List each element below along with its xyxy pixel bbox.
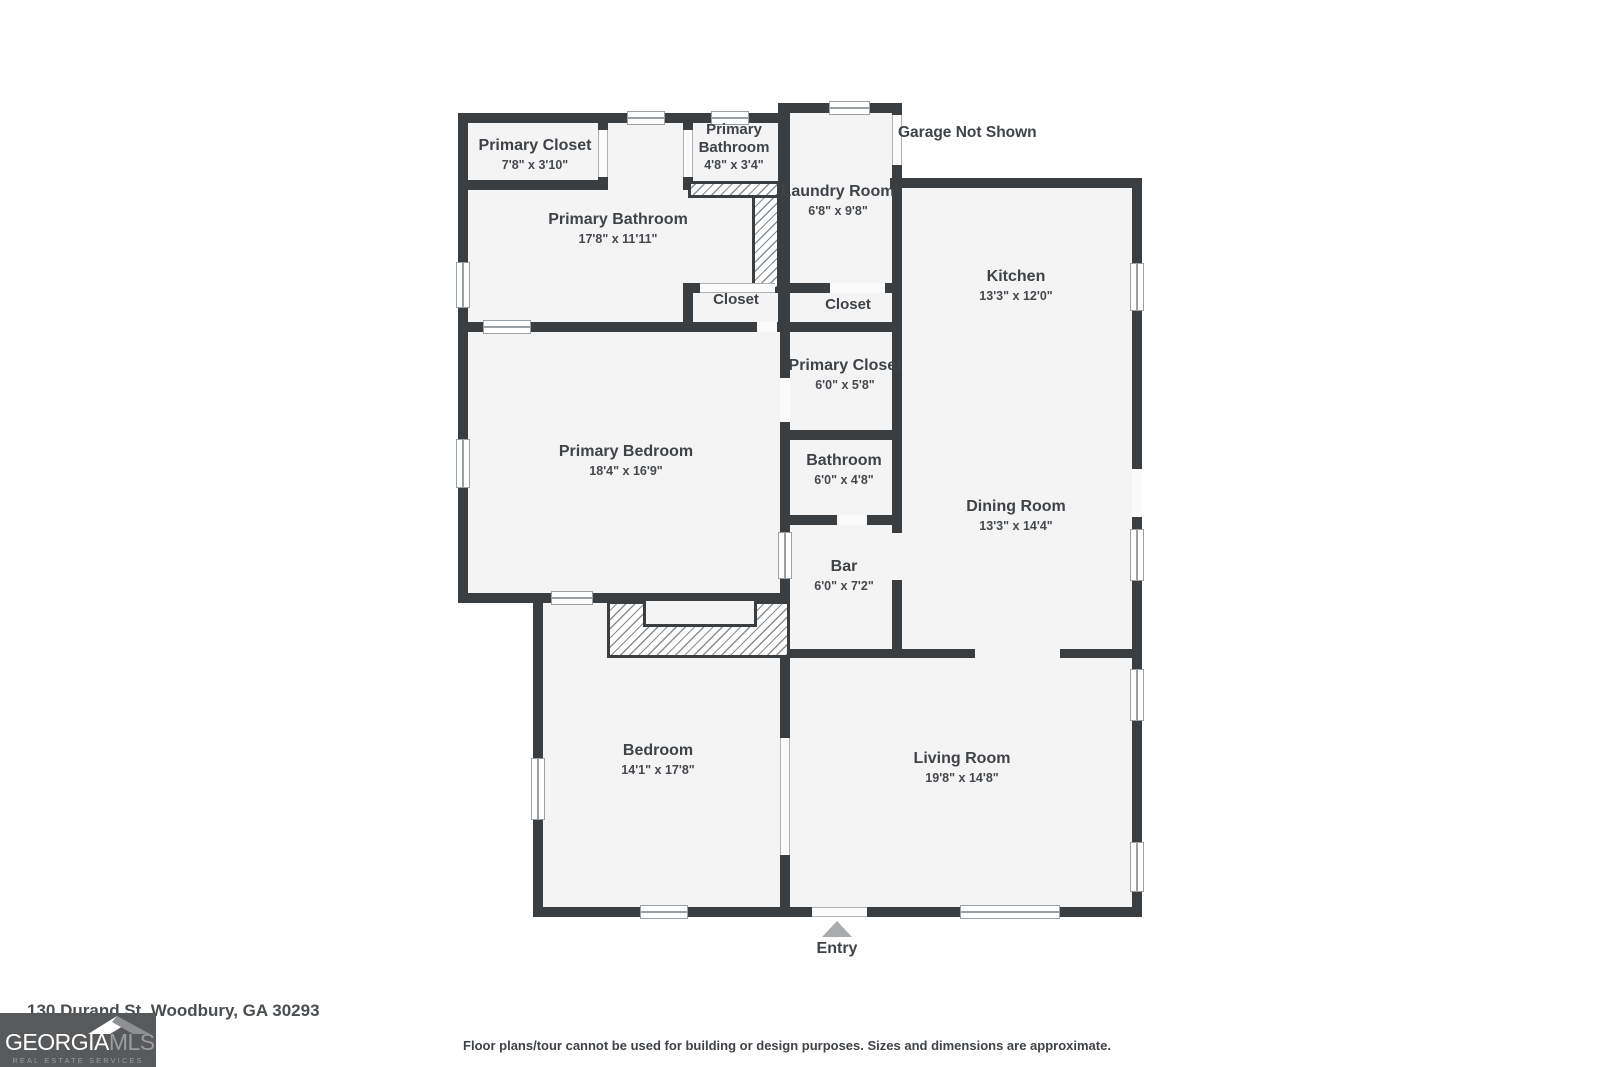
window-symbol <box>483 320 531 334</box>
fireplace-notch <box>643 601 757 627</box>
logo-tagline: REAL ESTATE SERVICES <box>0 1056 156 1065</box>
floor-area <box>900 186 1134 658</box>
room-name: Dining Room <box>966 498 1066 517</box>
room-label-closet-left: Closet <box>713 291 759 309</box>
disclaimer-text: Floor plans/tour cannot be used for buil… <box>463 1038 1111 1053</box>
room-dims: 7'8" x 3'10" <box>479 158 592 172</box>
room-label-primary-bedroom: Primary Bedroom 18'4" x 16'9" <box>559 443 693 478</box>
room-dims: 17'8" x 11'11" <box>548 232 688 246</box>
logo-brand-primary: GEORGIA <box>5 1029 109 1055</box>
room-label-primary-bathroom-small: Primary Bathroom 4'8" x 3'4" <box>674 121 794 172</box>
wall-segment <box>892 580 902 658</box>
room-dims: 18'4" x 16'9" <box>559 464 693 478</box>
room-label-laundry-room: Laundry Room 6'8" x 9'8" <box>782 183 895 218</box>
door-opening <box>757 322 777 332</box>
window-symbol <box>640 905 688 919</box>
room-dims: 6'0" x 7'2" <box>814 579 874 593</box>
door-opening <box>837 515 867 525</box>
window-symbol <box>960 905 1060 919</box>
wall-segment <box>892 103 902 533</box>
floorplan-page: Primary Closet 7'8" x 3'10" Primary Bath… <box>0 0 1600 1067</box>
logo-brand-secondary: MLS <box>109 1029 155 1055</box>
door-opening <box>830 283 885 293</box>
room-name: Primary Bedroom <box>559 443 693 462</box>
georgia-mls-logo: GEORGIAMLS REAL ESTATE SERVICES <box>0 1013 156 1067</box>
window-symbol <box>627 111 665 125</box>
room-name: Primary Bathroom <box>548 211 688 230</box>
window-symbol <box>551 591 593 605</box>
room-name: Laundry Room <box>782 183 895 202</box>
garage-note: Garage Not Shown <box>898 124 1037 142</box>
room-label-closet-right: Closet <box>825 296 871 314</box>
room-dims: 4'8" x 3'4" <box>674 158 794 172</box>
wall-segment <box>1060 649 1142 658</box>
room-dims: 13'3" x 12'0" <box>979 289 1052 303</box>
door-opening <box>780 738 790 855</box>
room-dims: 6'8" x 9'8" <box>782 204 895 218</box>
wall-segment <box>780 649 975 658</box>
room-name: Primary Closet <box>479 137 592 156</box>
room-label-living-room: Living Room 19'8" x 14'8" <box>914 750 1011 785</box>
room-label-primary-bathroom: Primary Bathroom 17'8" x 11'11" <box>548 211 688 246</box>
room-name: Living Room <box>914 750 1011 769</box>
window-symbol <box>778 532 792 579</box>
window-symbol <box>1130 263 1144 311</box>
room-name: Bedroom <box>621 742 694 761</box>
door-opening <box>598 130 608 177</box>
room-name: Primary Closet <box>789 357 902 376</box>
entry-label: Entry <box>817 940 858 958</box>
room-label-primary-closet-1: Primary Closet 7'8" x 3'10" <box>479 137 592 172</box>
window-symbol <box>1130 842 1144 892</box>
room-dims: 6'0" x 5'8" <box>789 378 902 392</box>
wall-segment <box>780 430 902 440</box>
room-label-bathroom: Bathroom 6'0" x 4'8" <box>806 452 882 487</box>
wall-segment <box>458 180 608 190</box>
room-name: Bathroom <box>806 452 882 471</box>
room-name: Closet <box>825 296 871 314</box>
room-name: Bar <box>814 558 874 577</box>
room-name: Closet <box>713 291 759 309</box>
window-symbol <box>1130 669 1144 721</box>
wall-opening <box>1132 469 1142 517</box>
room-dims: 14'1" x 17'8" <box>621 763 694 777</box>
room-label-bedroom: Bedroom 14'1" x 17'8" <box>621 742 694 777</box>
wall-segment <box>533 593 543 917</box>
room-label-primary-closet-2: Primary Closet 6'0" x 5'8" <box>789 357 902 392</box>
hatch-chimney <box>752 195 780 290</box>
window-symbol <box>456 439 470 488</box>
entry-door-opening <box>812 907 867 917</box>
window-symbol <box>829 101 870 115</box>
room-dims: 6'0" x 4'8" <box>806 473 882 487</box>
room-label-kitchen: Kitchen 13'3" x 12'0" <box>979 268 1052 303</box>
room-label-dining-room: Dining Room 13'3" x 14'4" <box>966 498 1066 533</box>
room-label-bar: Bar 6'0" x 7'2" <box>814 558 874 593</box>
window-symbol <box>531 758 545 820</box>
window-symbol <box>1130 529 1144 581</box>
room-dims: 19'8" x 14'8" <box>914 771 1011 785</box>
window-symbol <box>456 262 470 308</box>
room-name: Primary Bathroom <box>674 121 794 156</box>
wall-segment <box>890 178 1142 188</box>
room-name: Kitchen <box>979 268 1052 287</box>
logo-wordmark: GEORGIAMLS <box>5 1029 155 1056</box>
entry-arrow-icon <box>822 921 852 937</box>
room-dims: 13'3" x 14'4" <box>966 519 1066 533</box>
